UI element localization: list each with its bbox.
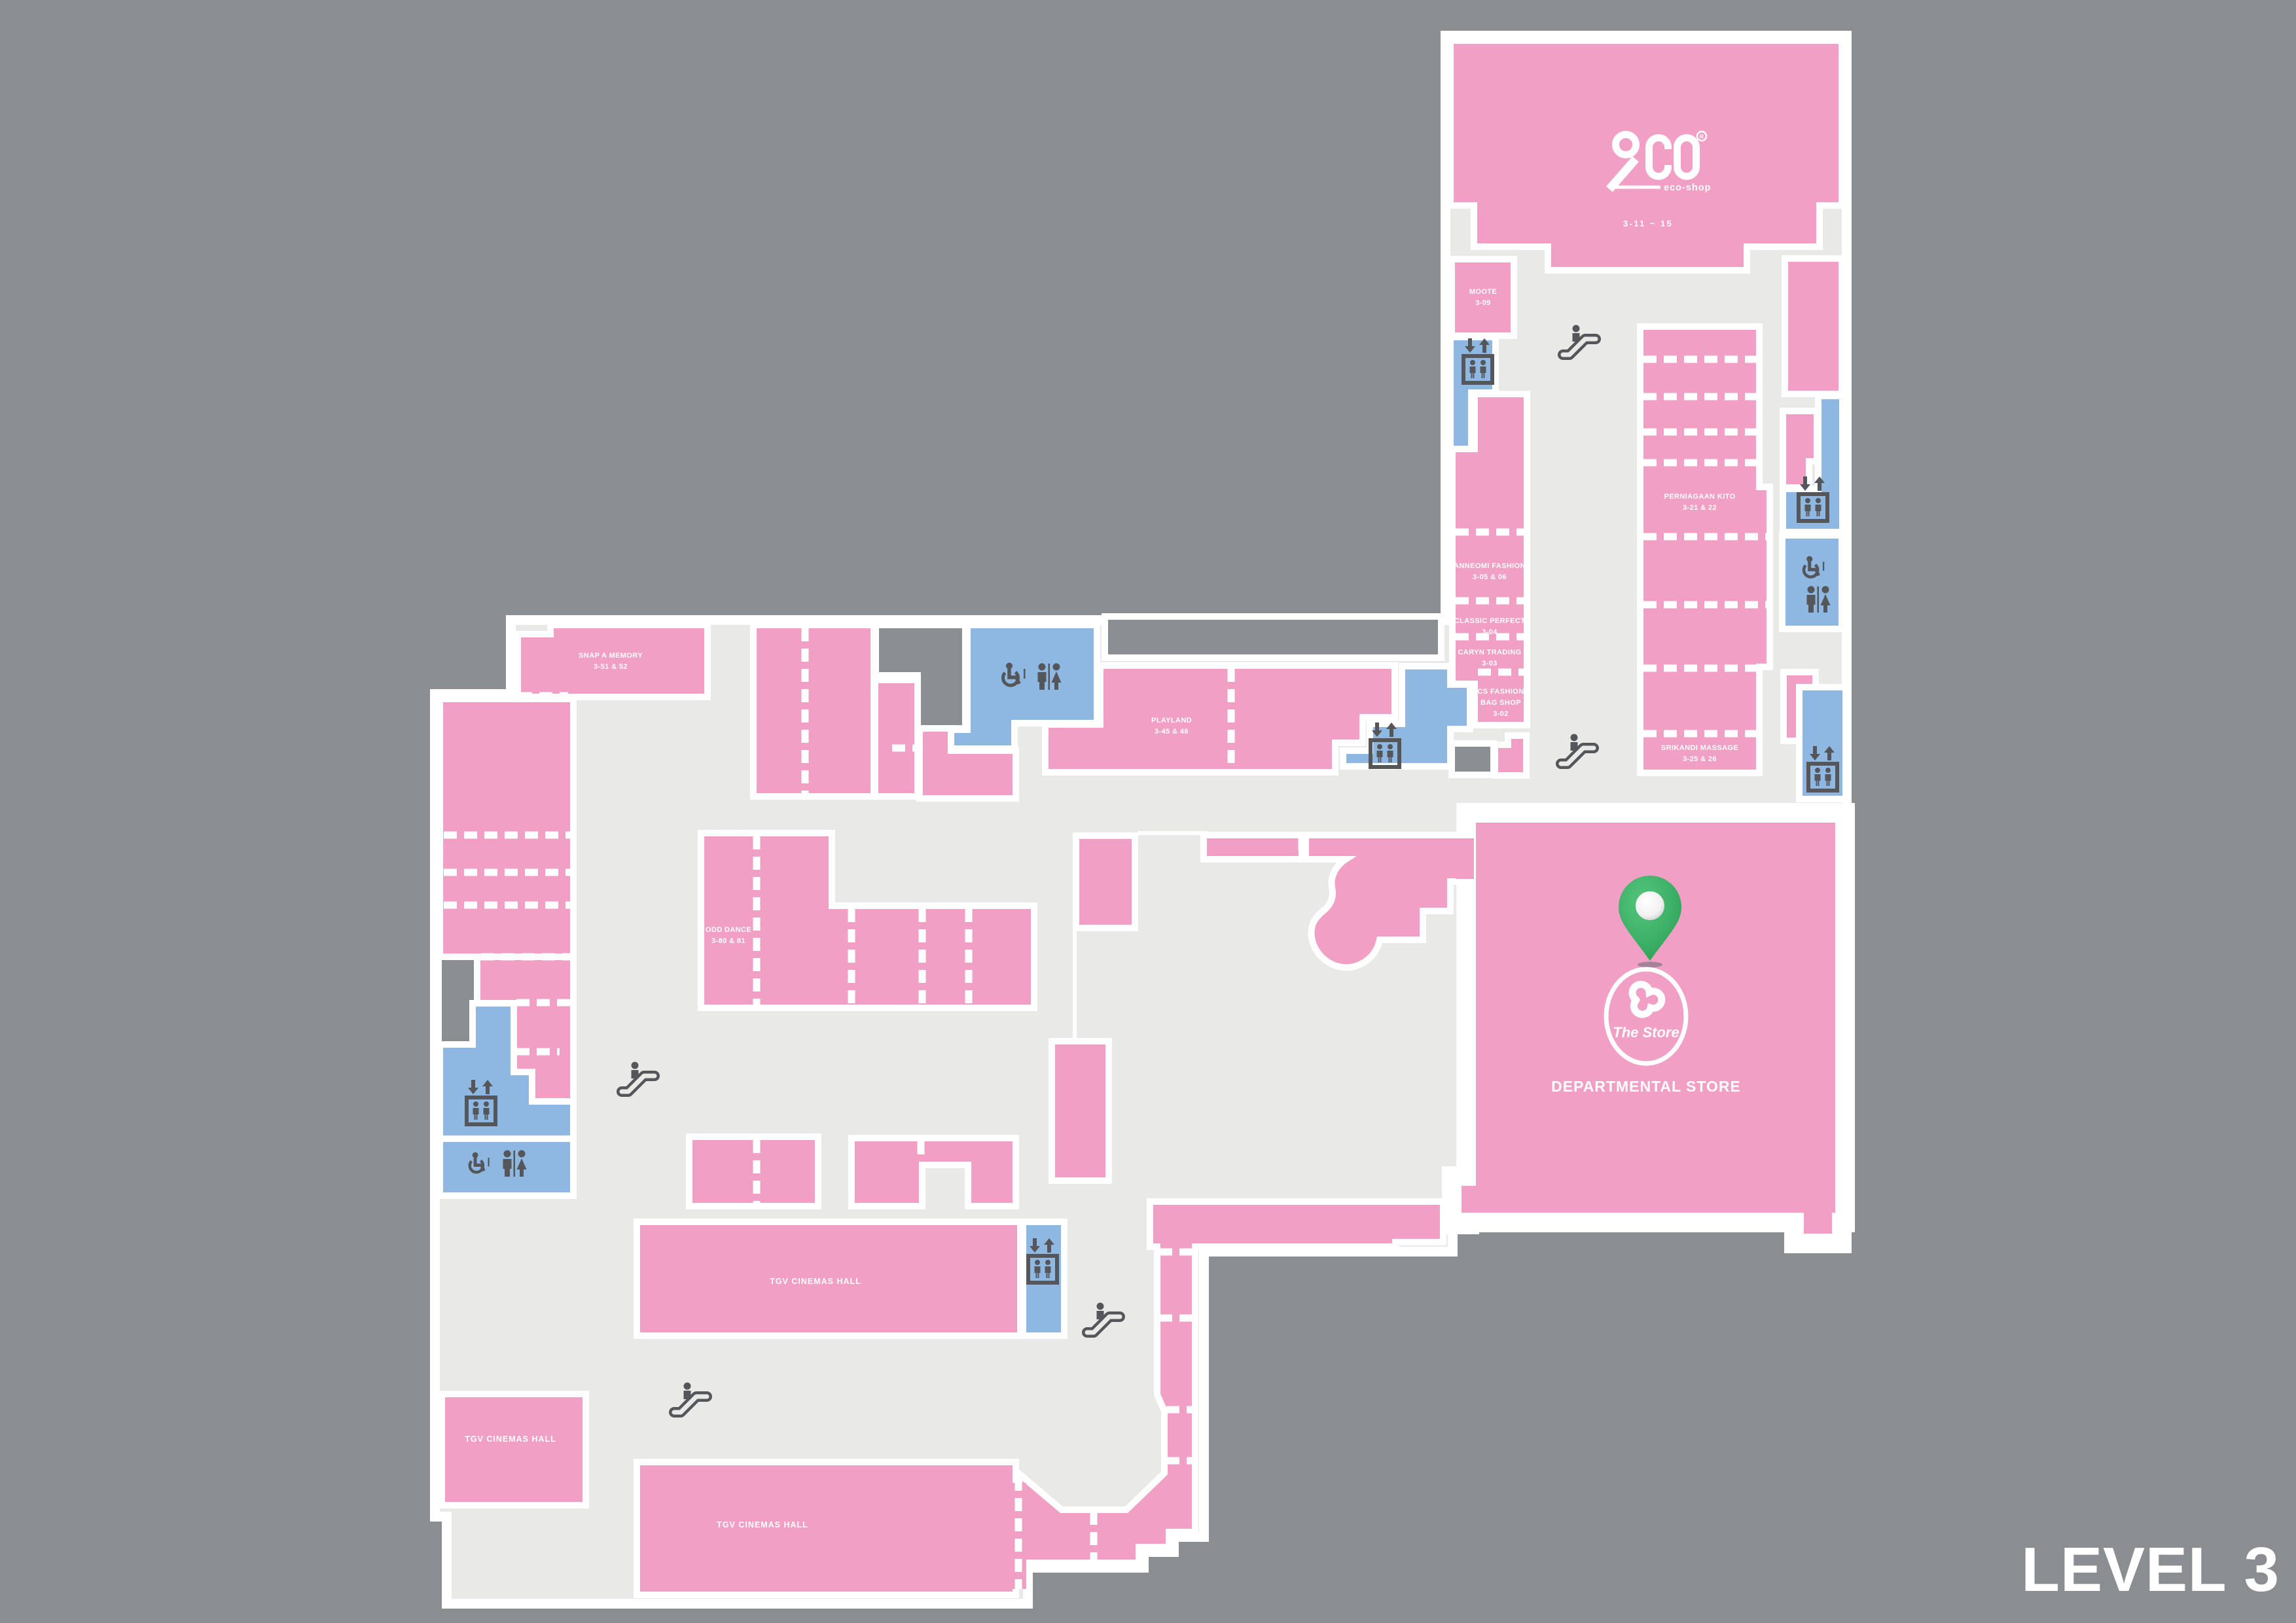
svg-text:MOOTE: MOOTE <box>1469 288 1497 296</box>
svg-text:CS FASHION: CS FASHION <box>1477 688 1524 696</box>
svg-text:3-05 & 06: 3-05 & 06 <box>1473 573 1507 581</box>
svg-text:PERNIAGAAN KITO: PERNIAGAAN KITO <box>1664 493 1735 501</box>
svg-text:LEVEL 3: LEVEL 3 <box>2021 1535 2280 1605</box>
svg-text:DEPARTMENTAL STORE: DEPARTMENTAL STORE <box>1551 1078 1741 1095</box>
svg-text:PLAYLAND: PLAYLAND <box>1151 717 1192 724</box>
svg-text:R: R <box>1700 134 1704 140</box>
svg-text:3-09: 3-09 <box>1475 299 1491 307</box>
svg-text:3-04: 3-04 <box>1482 628 1498 636</box>
svg-text:TGV CINEMAS HALL: TGV CINEMAS HALL <box>770 1277 861 1286</box>
svg-text:3-51 & 52: 3-51 & 52 <box>594 663 628 671</box>
svg-text:eco-shop: eco-shop <box>1664 183 1711 193</box>
svg-text:3-45 & 46: 3-45 & 46 <box>1155 728 1189 736</box>
svg-text:ODD DANCE: ODD DANCE <box>706 926 751 934</box>
svg-text:SRIKANDI MASSAGE: SRIKANDI MASSAGE <box>1661 744 1738 752</box>
svg-text:CARYN TRADING: CARYN TRADING <box>1458 649 1521 656</box>
svg-text:3-25 & 26: 3-25 & 26 <box>1683 755 1717 763</box>
svg-text:3-03: 3-03 <box>1482 660 1498 668</box>
svg-text:TGV CINEMAS HALL: TGV CINEMAS HALL <box>717 1520 808 1529</box>
svg-text:3-02: 3-02 <box>1493 710 1509 718</box>
svg-text:The Store: The Store <box>1613 1024 1679 1041</box>
svg-text:ANNEOMI FASHION: ANNEOMI FASHION <box>1454 562 1526 570</box>
svg-text:SNAP A MEMORY: SNAP A MEMORY <box>579 652 643 660</box>
svg-text:BAG SHOP: BAG SHOP <box>1480 699 1521 707</box>
svg-text:3-21 & 22: 3-21 & 22 <box>1683 504 1717 512</box>
svg-text:CLASSIC PERFECT: CLASSIC PERFECT <box>1454 617 1526 625</box>
svg-text:3-80 & 81: 3-80 & 81 <box>711 937 745 945</box>
svg-text:TGV CINEMAS HALL: TGV CINEMAS HALL <box>465 1435 556 1444</box>
svg-text:3-11 ~ 15: 3-11 ~ 15 <box>1623 219 1673 228</box>
